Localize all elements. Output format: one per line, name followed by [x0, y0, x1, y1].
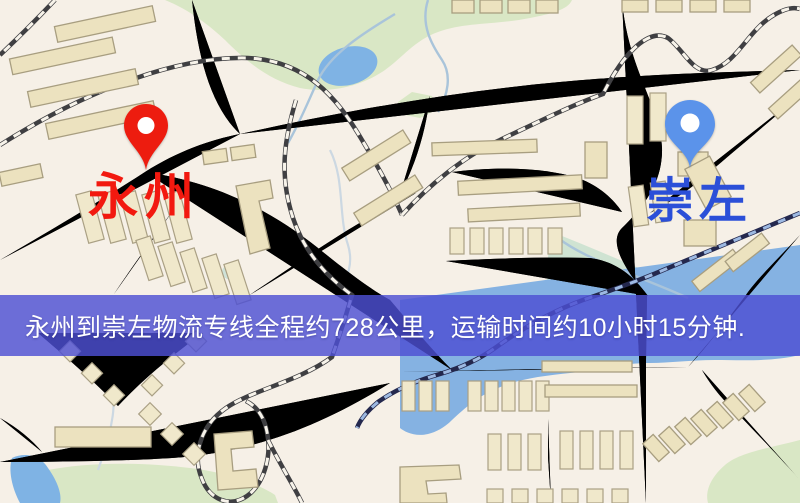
origin-pin-icon	[122, 104, 170, 172]
route-info-text: 永州到崇左物流专线全程约728公里，运输时间约10小时15分钟.	[25, 308, 745, 344]
origin-city-label: 永州	[88, 172, 200, 222]
map-canvas	[0, 0, 800, 503]
info-banner: 永州到崇左物流专线全程约728公里，运输时间约10小时15分钟.	[0, 295, 800, 356]
destination-city-label: 崇左	[646, 177, 752, 225]
logistics-map-image: 永州 崇左 永州到崇左物流专线全程约728公里，运输时间约10小时15分钟.	[0, 0, 800, 503]
destination-pin-icon	[665, 100, 715, 170]
